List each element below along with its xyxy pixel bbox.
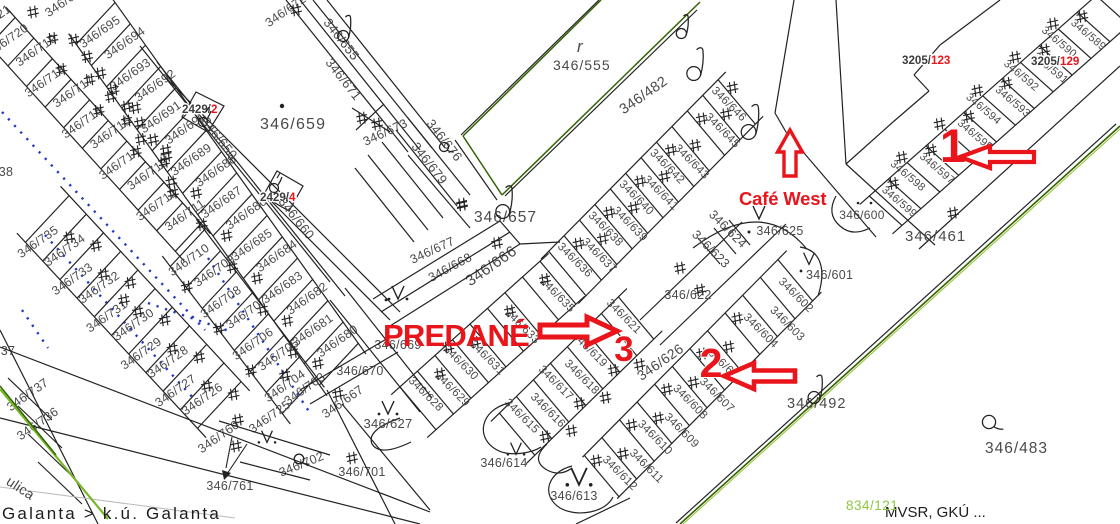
svg-text:346/761: 346/761 <box>206 479 253 493</box>
svg-text:3: 3 <box>614 330 633 369</box>
svg-text:346/600: 346/600 <box>839 208 885 222</box>
svg-text:1: 1 <box>940 119 966 172</box>
svg-text:346/614: 346/614 <box>480 456 527 470</box>
svg-text:3205/123: 3205/123 <box>902 54 951 67</box>
svg-text:346/555: 346/555 <box>553 57 611 73</box>
svg-text:PREDANÉ: PREDANÉ <box>383 318 529 353</box>
svg-text:2429/2: 2429/2 <box>182 103 217 116</box>
svg-text:Galanta > k.ú. Galanta: Galanta > k.ú. Galanta <box>2 504 221 523</box>
svg-text:346/613: 346/613 <box>550 489 597 503</box>
svg-text:346/483: 346/483 <box>985 440 1048 457</box>
svg-text:346/601: 346/601 <box>806 268 853 282</box>
svg-text:346/659: 346/659 <box>260 116 326 133</box>
svg-text:346/701: 346/701 <box>338 465 385 479</box>
svg-text:346/625: 346/625 <box>756 224 803 238</box>
svg-text:346/670: 346/670 <box>336 364 383 378</box>
svg-text:346/622: 346/622 <box>664 288 711 302</box>
svg-text:346/461: 346/461 <box>905 228 966 245</box>
svg-text:Café West: Café West <box>739 188 826 209</box>
svg-text:2: 2 <box>700 340 723 386</box>
svg-text:346/492: 346/492 <box>787 396 846 412</box>
svg-text:346/627: 346/627 <box>363 416 412 431</box>
svg-text:834/121: 834/121 <box>846 498 898 513</box>
svg-text:37: 37 <box>1 344 16 358</box>
svg-text:MVSR, GKÚ ...: MVSR, GKÚ ... <box>885 504 986 521</box>
svg-text:3205/129: 3205/129 <box>1031 55 1080 68</box>
svg-text:38: 38 <box>0 165 13 179</box>
